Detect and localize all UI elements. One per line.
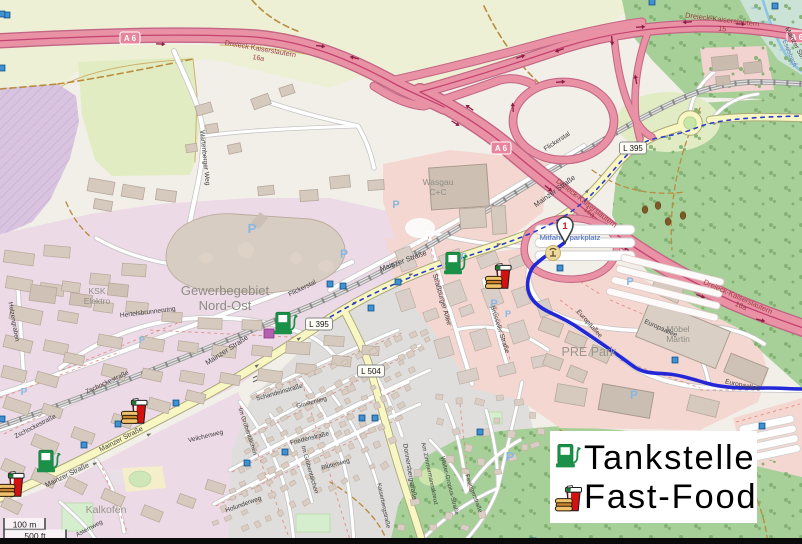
- svg-text:P: P: [505, 309, 511, 319]
- svg-text:Fast-Food: Fast-Food: [584, 478, 757, 516]
- svg-text:1: 1: [562, 221, 568, 232]
- svg-text:Wasgau: Wasgau: [423, 177, 454, 187]
- svg-text:100 m: 100 m: [13, 520, 37, 530]
- svg-text:P: P: [139, 335, 145, 345]
- svg-text:L 395: L 395: [623, 144, 643, 153]
- svg-text:P: P: [626, 276, 633, 288]
- svg-text:P: P: [21, 387, 28, 398]
- svg-text:Tankstelle: Tankstelle: [584, 439, 755, 477]
- svg-text:Kalkofen: Kalkofen: [86, 504, 127, 516]
- svg-text:A 6: A 6: [495, 144, 508, 153]
- svg-text:P: P: [490, 298, 497, 310]
- svg-text:L 395: L 395: [309, 320, 329, 329]
- svg-text:Elektro: Elektro: [84, 296, 111, 306]
- svg-text:P: P: [248, 221, 257, 236]
- svg-text:Gewerbegebiet: Gewerbegebiet: [181, 283, 270, 298]
- svg-text:Nord-Ost: Nord-Ost: [199, 298, 252, 313]
- svg-text:A 6: A 6: [124, 34, 137, 43]
- svg-text:P: P: [630, 388, 638, 402]
- svg-text:15: 15: [718, 24, 727, 34]
- svg-text:P: P: [506, 449, 515, 464]
- svg-text:PRE Park: PRE Park: [562, 345, 618, 359]
- svg-text:C+C: C+C: [429, 187, 446, 197]
- svg-text:P: P: [340, 247, 348, 261]
- svg-text:L 504: L 504: [361, 367, 381, 376]
- svg-text:KSK: KSK: [88, 286, 105, 296]
- svg-text:P: P: [392, 199, 399, 211]
